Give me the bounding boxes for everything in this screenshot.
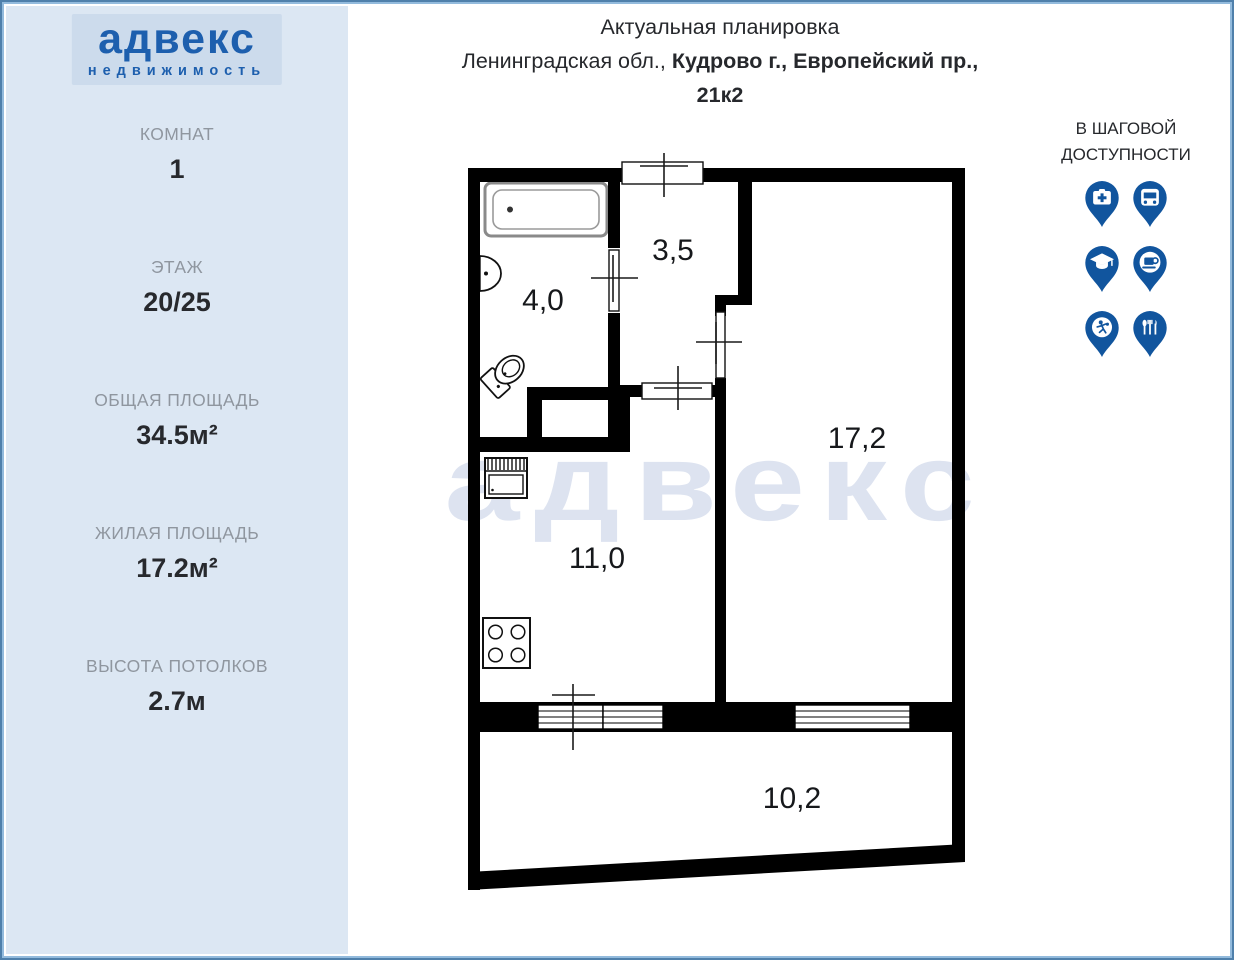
stat-floor: ЭТАЖ 20/25 [6, 257, 348, 318]
sink-icon [480, 256, 501, 291]
logo-subtitle: недвижимость [88, 63, 266, 79]
room-area-hallway: 3,5 [652, 234, 694, 267]
walkability-title: В ШАГОВОЙ ДОСТУПНОСТИ [1056, 116, 1196, 168]
education-pin-icon [1083, 245, 1121, 293]
kitchen-door [642, 383, 712, 399]
sidebar: адвекс недвижимость КОМНАТ 1 ЭТАЖ 20/25 … [6, 6, 348, 954]
bus-pin-icon [1131, 180, 1169, 228]
address-line: Ленинградская обл., Кудрово г., Европейс… [355, 44, 1085, 78]
address-city-street: Кудрово г., Европейский пр., [672, 49, 978, 73]
bathroom-door [609, 250, 619, 311]
room-area-living: 17,2 [828, 422, 886, 455]
stat-label: ОБЩАЯ ПЛОЩАДЬ [6, 390, 348, 411]
room-area-balcony: 10,2 [763, 782, 821, 815]
stat-label: ЖИЛАЯ ПЛОЩАДЬ [6, 523, 348, 544]
stat-value: 2.7м [6, 686, 348, 717]
stat-label: КОМНАТ [6, 124, 348, 145]
logo: адвекс недвижимость [72, 14, 282, 85]
logo-title: адвекс [88, 18, 266, 61]
page-header: Актуальная планировка Ленинградская обл.… [355, 10, 1085, 112]
page-title: Актуальная планировка [355, 10, 1085, 44]
room-area-kitchen: 11,0 [569, 542, 625, 575]
stove-icon [483, 618, 530, 668]
room-door [716, 312, 725, 378]
doors [609, 162, 725, 399]
stat-value: 17.2м² [6, 553, 348, 584]
stat-label: ЭТАЖ [6, 257, 348, 278]
bathtub-icon [485, 183, 607, 236]
stat-total-area: ОБЩАЯ ПЛОЩАДЬ 34.5м² [6, 390, 348, 451]
floor-plan: адвекс [440, 150, 1000, 940]
cafe-pin-icon [1131, 245, 1169, 293]
walkability-panel: В ШАГОВОЙ ДОСТУПНОСТИ [1056, 116, 1196, 358]
stat-value: 34.5м² [6, 420, 348, 451]
walkability-pins [1056, 180, 1196, 358]
room-area-bathroom: 4,0 [522, 284, 564, 317]
washing-machine-icon [485, 458, 527, 498]
first-aid-pin-icon [1083, 180, 1121, 228]
sports-pin-icon [1083, 310, 1121, 358]
page: адвекс недвижимость КОМНАТ 1 ЭТАЖ 20/25 … [0, 0, 1234, 960]
restaurant-pin-icon [1131, 310, 1169, 358]
toilet-icon [480, 349, 531, 399]
stat-rooms: КОМНАТ 1 [6, 124, 348, 185]
stat-label: ВЫСОТА ПОТОЛКОВ [6, 656, 348, 677]
stat-ceiling-height: ВЫСОТА ПОТОЛКОВ 2.7м [6, 656, 348, 717]
floor-plan-drawing: адвекс [440, 150, 1000, 940]
address-region: Ленинградская обл., [462, 49, 672, 73]
stat-value: 20/25 [6, 287, 348, 318]
address-building: 21к2 [355, 78, 1085, 112]
stat-living-area: ЖИЛАЯ ПЛОЩАДЬ 17.2м² [6, 523, 348, 584]
stat-value: 1 [6, 154, 348, 185]
